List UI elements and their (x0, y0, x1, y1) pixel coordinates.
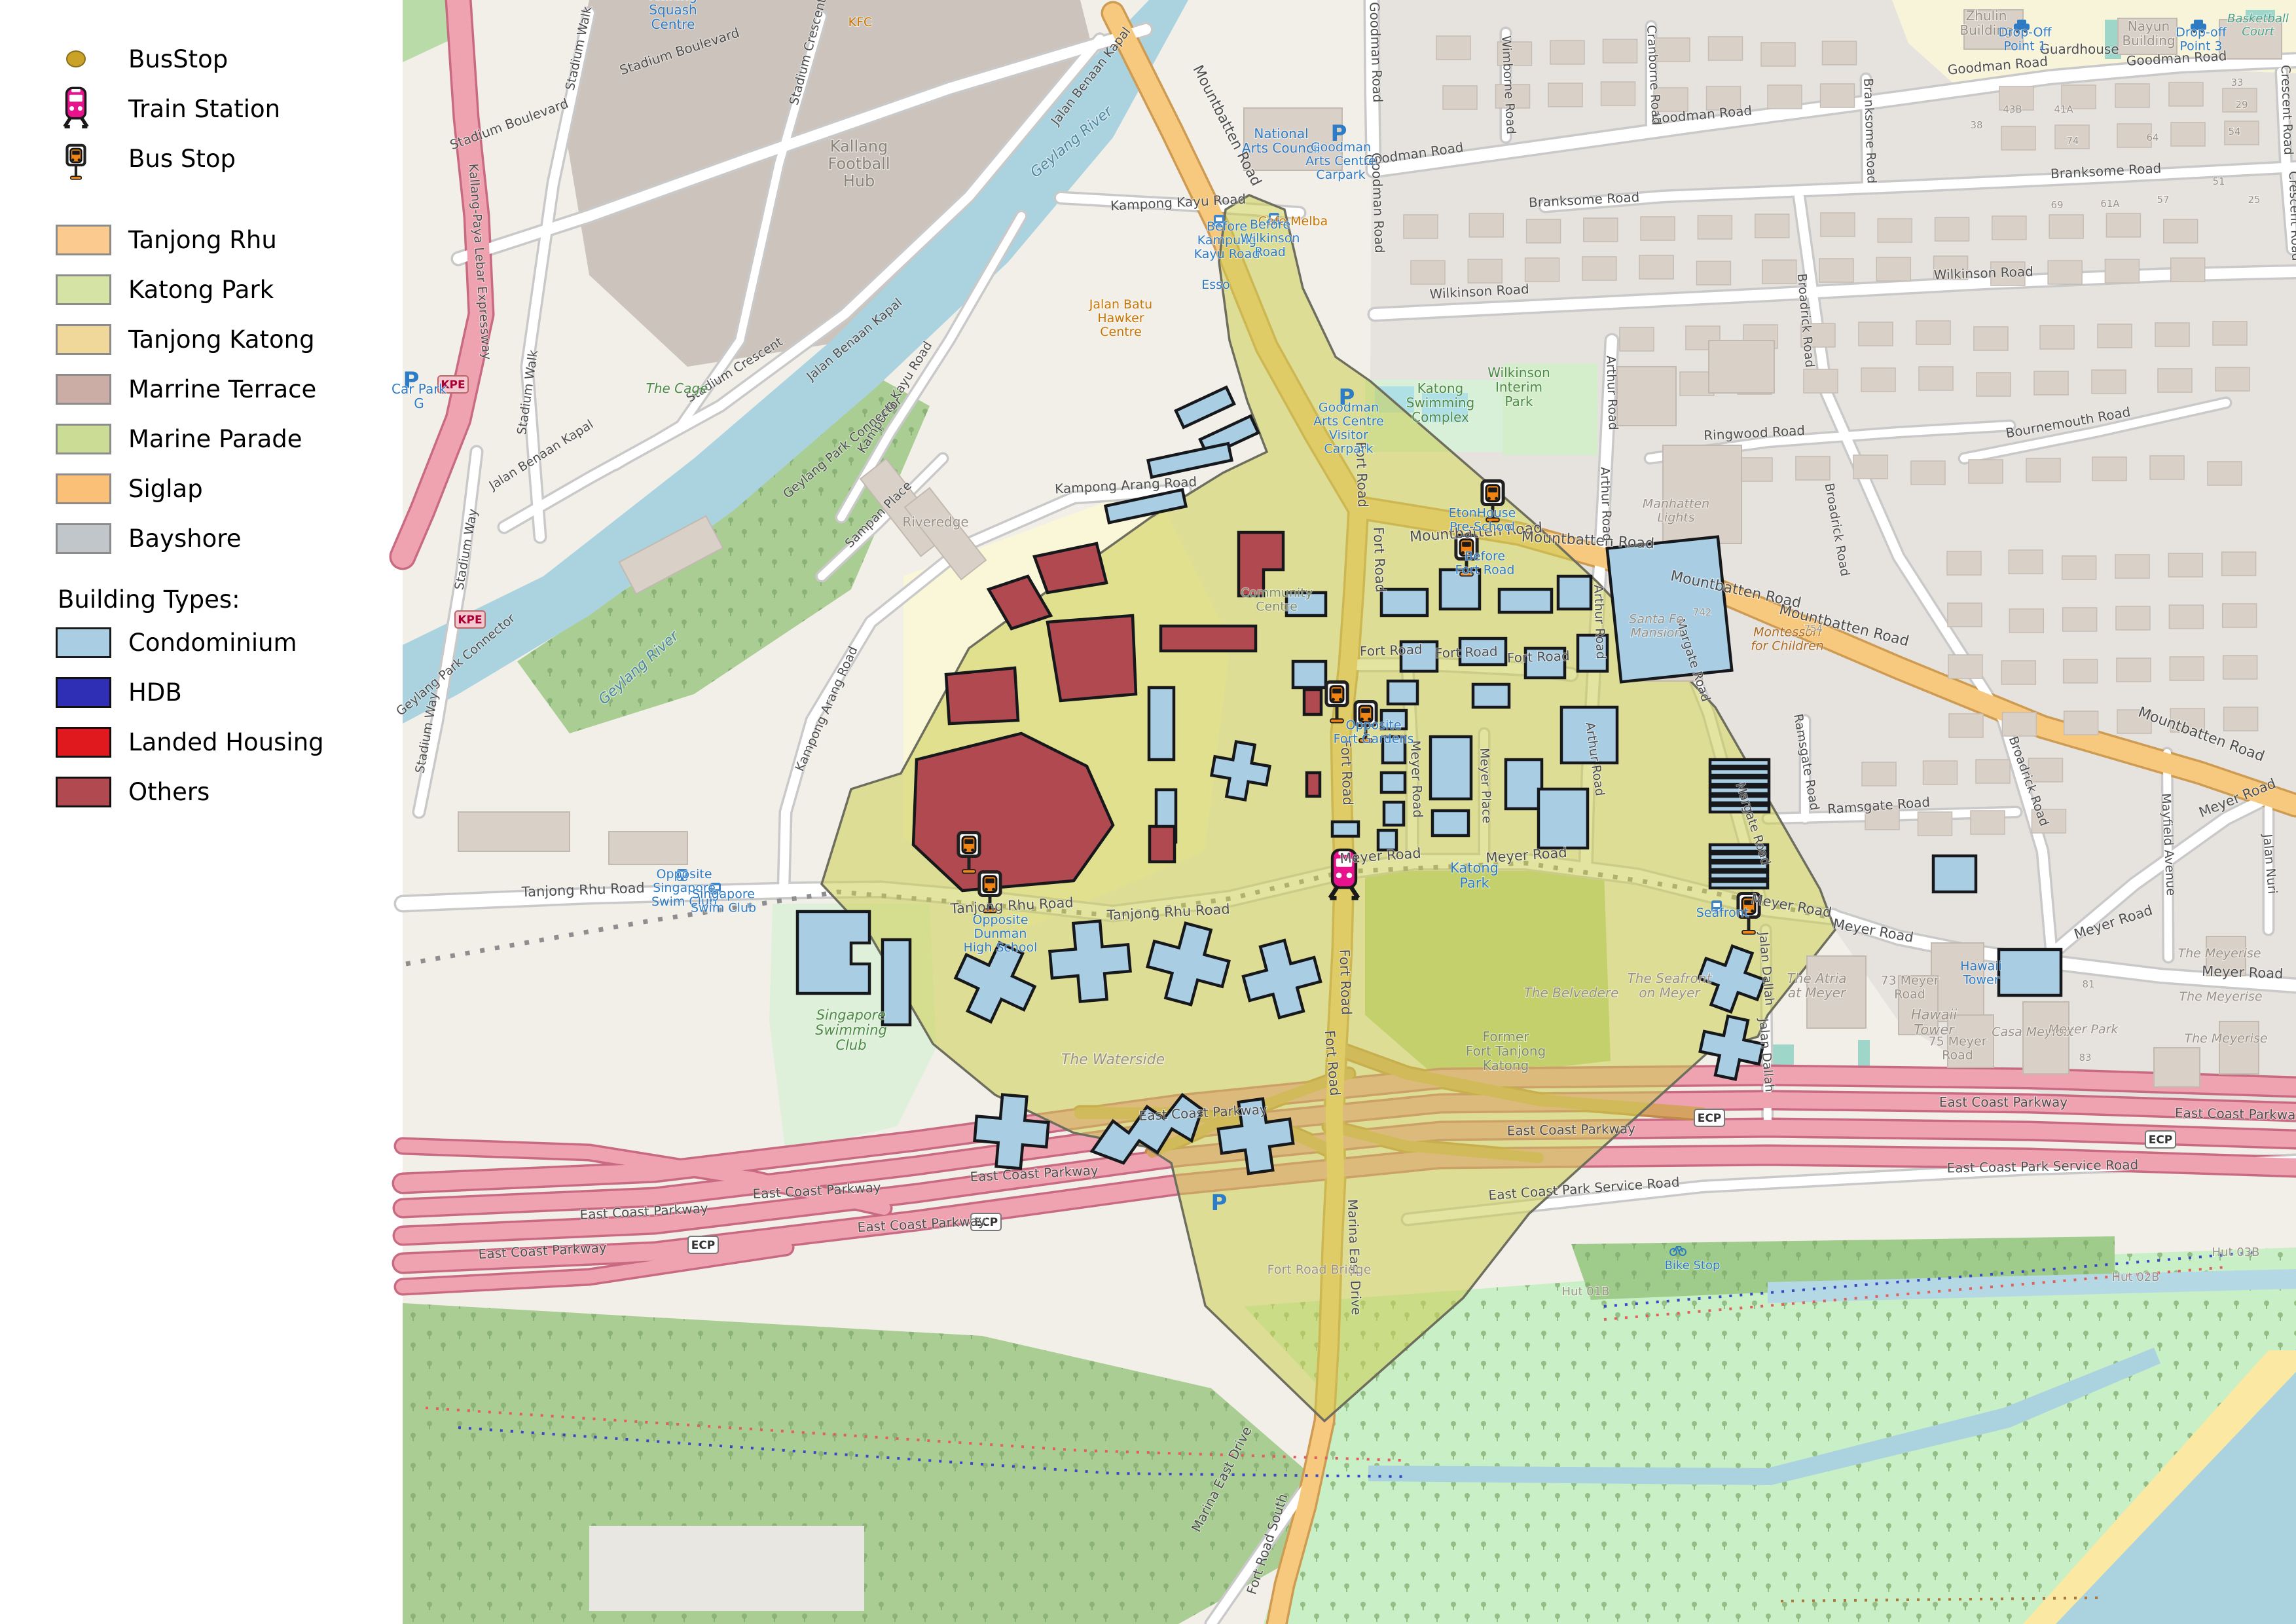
house (2001, 126, 2035, 150)
map-label-line: High School (964, 940, 1038, 955)
condominium-building (1293, 661, 1326, 688)
house (1620, 327, 1654, 351)
map-label-line: Car Park (392, 381, 446, 397)
house (2224, 707, 2258, 731)
map-label-line: Hub (843, 172, 875, 190)
map-label-line: Bike Stop (1665, 1259, 1721, 1272)
shield-text: KPE (458, 614, 482, 627)
map-label: Arthur Road (1603, 356, 1620, 431)
house (2002, 712, 2036, 736)
house (1823, 41, 1857, 65)
house (2164, 219, 2198, 243)
katong-park-swatch (56, 274, 111, 305)
map-label-line: Fort Road (1338, 739, 1355, 805)
map-label-line: Point 3 (2179, 39, 2222, 53)
house (2171, 258, 2205, 282)
map-label-line: Drop-Off (1998, 26, 2052, 40)
condominium-building (1710, 872, 1768, 879)
map-label-line: Mansion (1631, 625, 1683, 640)
base (1330, 719, 1343, 723)
map-label-line: 51 (2212, 175, 2225, 187)
condominium-building (1710, 769, 1769, 775)
siglap-swatch (56, 473, 111, 504)
map-label-line: Opposite (656, 867, 712, 881)
map-label-line: Zhulin (1966, 8, 2007, 24)
map-label-line: Fort Road Bridge (1267, 1263, 1372, 1277)
map-label: Fort Road (1336, 949, 1354, 1015)
map-label-line: Riveredge (902, 514, 968, 530)
house (1768, 85, 1802, 109)
map-label: HawaiiTower (1960, 959, 2002, 987)
train-window (69, 95, 82, 101)
house (2117, 658, 2151, 682)
map-label: 29 (2235, 99, 2248, 111)
map-label-line: Tower (1962, 972, 1999, 987)
house (1584, 218, 1618, 242)
tanjong-rhu-swatch (56, 225, 111, 255)
map-label-line: 25 (2248, 194, 2260, 206)
condominium-building (1473, 684, 1509, 707)
wheel (1495, 497, 1498, 500)
ecp-shield: ECP (688, 1236, 718, 1253)
house (2213, 322, 2247, 345)
condominium-building (1430, 737, 1471, 799)
map-label-line: The Cage (646, 380, 708, 396)
house (2223, 655, 2257, 679)
house (2106, 213, 2140, 237)
map-label-line: Manhatten (1643, 497, 1709, 511)
map-label: The Meyerise (2178, 946, 2261, 961)
map-label-line: Fort Road (1336, 949, 1354, 1015)
car-cab (2194, 20, 2203, 24)
house (1525, 258, 1559, 282)
train-station-icon (65, 88, 88, 126)
map-label-line: Basketball (2227, 12, 2289, 26)
map-label-line: The Meyerise (2178, 946, 2261, 961)
kpe-shield: KPE (455, 611, 485, 628)
others-building (1150, 826, 1175, 862)
map-label-line: Swimming (815, 1022, 887, 1038)
ecp-shield: ECP (2145, 1131, 2176, 1148)
condominium-building (1999, 950, 2061, 995)
house (2215, 367, 2250, 391)
map-label: Esso (1201, 278, 1230, 292)
map-label: The Meyerise (2179, 989, 2262, 1004)
map-label-line: Pre-School (1449, 519, 1515, 534)
wheel (1487, 497, 1491, 500)
house (1738, 458, 1772, 481)
map-label-line: 69 (2050, 199, 2063, 211)
map-label: 64 (2146, 132, 2159, 143)
house (2001, 661, 2035, 684)
map-label-line: Road (1894, 987, 1925, 1001)
legend-label-marrine-terrace: Marrine Terrace (128, 375, 316, 403)
house (1948, 603, 1982, 627)
map-label-line: Squash (649, 2, 697, 18)
condominium-building (1149, 688, 1174, 760)
others-building (1161, 626, 1256, 651)
house (2063, 608, 2097, 631)
map-label: Fort Road (1370, 526, 1388, 593)
map-label-line: Katong (1450, 860, 1499, 876)
house (1796, 456, 1830, 480)
map-label-line: Singapore (692, 887, 755, 902)
map-label-line: 75 Meyer (1928, 1035, 1986, 1049)
map-label-line: Arthur Road (1603, 356, 1620, 431)
train-light (1336, 872, 1342, 878)
house (2098, 324, 2132, 348)
windshield (1361, 708, 1370, 712)
house (2034, 371, 2068, 395)
map-label-line: Meyer Place (1477, 748, 1494, 824)
map-label: NayunBuilding (2122, 18, 2175, 48)
map-label-line: The Meyerise (2184, 1031, 2267, 1046)
house (1641, 217, 1675, 240)
house (1948, 655, 1982, 678)
legend-item-marrine-terrace: Marrine Terrace (39, 364, 393, 414)
map-label: 61A (2100, 198, 2120, 210)
map-label-line: Lights (1657, 510, 1694, 525)
legend-item-others: Others (39, 767, 393, 817)
wheel (971, 849, 974, 852)
map-label: KFC (848, 15, 873, 29)
map-label-line: 64 (2146, 132, 2159, 143)
map-label-line: East Coast Park Service Road (1946, 1156, 2138, 1175)
others-building (1304, 690, 1321, 714)
train-station-icon (48, 84, 104, 134)
map-label: HawaiiTower (1911, 1006, 1958, 1037)
house (1527, 219, 1561, 243)
windshield (1332, 688, 1341, 693)
house (2049, 215, 2083, 238)
map-label-line: Carpark (1316, 168, 1365, 182)
map-label-line: Park (1504, 394, 1533, 409)
legend-item-train-station: Train Station (39, 84, 393, 134)
condominium-building (1710, 760, 1769, 766)
map-label: The Seafronton Meyer (1628, 970, 1713, 1001)
map-label: 81 (2082, 978, 2094, 990)
train-light (69, 106, 74, 111)
legend-item-bus-stop: Bus Stop (39, 134, 393, 183)
windshield (1488, 487, 1497, 492)
map-label-line: Fort Road (1455, 563, 1515, 577)
map-label-line: Fort Road (1507, 648, 1570, 665)
legend-label-condominium: Condominium (128, 629, 297, 657)
house (1469, 213, 1503, 237)
legend-label-bus-stop: Bus Stop (128, 145, 236, 173)
map-label: The Cage (646, 380, 708, 396)
legend-label-landed-housing: Landed Housing (128, 728, 324, 756)
house (1971, 811, 2005, 834)
map-label-line: Fort Road (1435, 643, 1498, 661)
map-label-line: Former (1483, 1029, 1530, 1044)
map-label: 742 (1693, 606, 1712, 618)
map-label: Guardhouse (2039, 41, 2119, 57)
shield-text: ECP (691, 1239, 716, 1252)
house (1443, 86, 1477, 109)
map-label-line: Building (2122, 33, 2175, 48)
windshield (964, 839, 974, 843)
busstop-dot-icon (48, 34, 104, 84)
map-label-line: Nayun (2128, 18, 2170, 34)
map-label-line: Centre (1100, 325, 1142, 339)
map-label: 33 (2231, 77, 2243, 88)
map-label-line: Opposite (972, 913, 1028, 927)
gray-building (458, 812, 570, 851)
house (1976, 760, 2010, 783)
house (1819, 259, 1853, 282)
map-label-line: Kayu Road (1194, 247, 1260, 261)
map-label-line: Hut 02B (2112, 1270, 2160, 1284)
map-label: Fort Road (1360, 641, 1423, 659)
bus-stop-icon (48, 134, 104, 183)
house (2009, 550, 2043, 574)
house (1859, 322, 1893, 346)
map-label: East Coast Parkway (1507, 1120, 1636, 1138)
map-label: Arthur Road (1591, 585, 1608, 660)
house (1862, 762, 1896, 786)
map-label-line: Arts Centre (1313, 415, 1384, 429)
map-label-line: 754 (1804, 623, 1823, 635)
condominium-building (1499, 589, 1552, 612)
map-label: Fort Road (1338, 739, 1355, 805)
condominium-building (1710, 805, 1769, 812)
map-label-line: Fort Tanjong (1466, 1043, 1546, 1059)
map-label-line: Dunman (974, 927, 1027, 941)
map-label-line: Hawaii (1911, 1006, 1958, 1022)
map-label-line: Hawaii (1960, 959, 2002, 974)
map-label: East Coast Park Service Road (1946, 1156, 2138, 1175)
map-label-line: 61A (2100, 198, 2120, 210)
house (1878, 219, 1912, 242)
wheel (1339, 698, 1342, 701)
house (2064, 711, 2098, 735)
map-label: 74 (2066, 135, 2079, 147)
house (1698, 215, 1732, 239)
map-label-line: Club (835, 1037, 866, 1053)
house (1656, 38, 1690, 62)
windshield (985, 878, 994, 883)
bus-stop-icon (67, 145, 84, 179)
bus-stop-icon-cell (39, 134, 113, 183)
map-label-line: Esso (1201, 278, 1230, 292)
map-label: Seafront (1696, 906, 1749, 920)
house (2116, 606, 2150, 630)
wheel (1751, 910, 1754, 913)
house (2168, 553, 2202, 577)
marine-parade-swatch (56, 424, 111, 454)
legend-label-hdb: HDB (128, 678, 182, 707)
shield-text: ECP (1698, 1112, 1722, 1125)
map-label-line: Road (1254, 245, 1286, 259)
map-label: Hut 02B (2112, 1270, 2160, 1284)
map-label: The Belvedere (1524, 985, 1619, 1001)
map-label-line: Arthur Road (1597, 467, 1614, 542)
house (1911, 461, 1945, 485)
map-label-line: 74 (2066, 135, 2079, 147)
map-label: Arthur Road (1597, 467, 1614, 542)
gray-building (1617, 367, 1676, 426)
house (1919, 367, 1953, 390)
house (1935, 217, 1969, 241)
house (2170, 657, 2204, 680)
map-label-line: 81 (2082, 978, 2094, 990)
map-label-line: Hawker (1097, 311, 1144, 325)
condominium-building (1506, 760, 1542, 809)
map-label: 51 (2212, 175, 2225, 187)
base (1742, 931, 1755, 934)
legend-item-hdb: HDB (39, 667, 393, 717)
house (1755, 214, 1789, 238)
legend-item-busstop-point: BusStop (39, 34, 393, 84)
condominium-building (1381, 589, 1427, 616)
legend-label-train-station: Train Station (128, 95, 280, 123)
map-label: OppositeDunmanHigh School (964, 913, 1038, 955)
map-label-line: Santa Fe (1629, 612, 1684, 627)
house (1853, 455, 1887, 479)
map-label: Meyer Place (1477, 748, 1494, 824)
legend-item-bayshore: Bayshore (39, 513, 393, 563)
wheel (992, 888, 995, 891)
legend-item-katong-park: Katong Park (39, 265, 393, 314)
house (2169, 83, 2203, 106)
map-label-line: Meyer Road (1408, 740, 1426, 818)
house (1947, 551, 1981, 575)
house (2222, 552, 2256, 576)
map-label-line: Katong (1417, 380, 1463, 396)
shield-text: ECP (2149, 1134, 2173, 1147)
house (2208, 462, 2242, 485)
map-label-line: Fort Road (1370, 526, 1388, 593)
condominium-building (1388, 681, 1417, 704)
gray-building (1663, 445, 1741, 544)
map-label: The Atriaat Meyer (1787, 970, 1847, 1001)
map-label-line: Goodman (1319, 401, 1379, 415)
condominium-building (1432, 811, 1468, 836)
legend-item-landed-housing: Landed Housing (39, 717, 393, 767)
map-label-line: 54 (2228, 126, 2240, 138)
wheel (964, 849, 967, 852)
map-label-line: Visitor (1329, 428, 1368, 442)
map-label: KallangSquashCentre (649, 0, 697, 32)
house (1821, 213, 1855, 236)
map-label: 83 (2079, 1052, 2091, 1063)
map-label-line: National (1254, 126, 1308, 141)
map-label-line: Community (1241, 586, 1313, 600)
map-label: Meyer Road (1408, 740, 1426, 818)
train-body (67, 88, 86, 118)
house (2062, 556, 2096, 580)
map-label-line: Kallang (830, 138, 888, 156)
map-label: EtonHousePre-School (1449, 506, 1516, 534)
legend-label-marine-parade: Marine Parade (128, 425, 302, 453)
house (1876, 257, 1910, 281)
map-label: Meyer Park (2049, 1022, 2119, 1037)
condominium-building (1558, 576, 1591, 609)
legend-item-siglap: Siglap (39, 464, 393, 513)
marrine-terrace-swatch (56, 374, 111, 405)
others-swatch (56, 777, 111, 807)
map-label-line: Complex (1412, 409, 1469, 425)
map-label-line: Singapore (816, 1007, 886, 1023)
others-building (1048, 616, 1136, 701)
house (1804, 369, 1838, 393)
train-light (1347, 872, 1353, 878)
map-label-line: Arthur Road (1591, 585, 1608, 660)
parking-lot (589, 1526, 864, 1611)
others-building (1307, 773, 1320, 796)
house (2171, 122, 2205, 146)
house (1861, 368, 1895, 392)
house (2158, 369, 2192, 392)
house (1923, 761, 1958, 784)
map-label-line: 38 (1970, 119, 1982, 131)
train-roof-window (71, 89, 81, 92)
condominium-building (1384, 802, 1404, 825)
gray-building (1709, 341, 1774, 393)
house (1762, 260, 1796, 284)
map-label: 38 (1970, 119, 1982, 131)
map-label-line: Park (1459, 876, 1489, 891)
wheel (78, 158, 81, 161)
map-label: Santa FeMansion (1629, 612, 1684, 640)
house (2150, 456, 2184, 479)
house (1601, 82, 1635, 105)
map-label: Hut 03B (2212, 1246, 2260, 1259)
busstop-point-icon-cell (39, 34, 113, 84)
map-label-line: 73 Meyer (1880, 974, 1939, 988)
map-label-line: Meyer Park (2049, 1022, 2119, 1037)
house (1468, 259, 1502, 283)
house (2092, 370, 2126, 394)
map-screenshot: PPPPECPECPECPECPKPEKPEMountbatten RoadMo… (0, 0, 2296, 1624)
windshield (72, 151, 79, 155)
house (1404, 215, 1438, 238)
wheel (1332, 698, 1335, 701)
house (1974, 327, 2008, 350)
map-label-line: 83 (2079, 1052, 2091, 1063)
map-label-line: Hut 01B (1562, 1285, 1610, 1299)
map-label-line: Drop-off (2176, 26, 2227, 40)
house (1761, 43, 1795, 66)
map-label-line: Road (1942, 1048, 1973, 1062)
condominium-building (883, 940, 910, 1025)
map-label: 41A (2054, 103, 2073, 115)
house (1709, 37, 1743, 60)
map-label-line: Before (1465, 549, 1505, 564)
map-label-line: East Coast Parkway (2175, 1105, 2296, 1122)
map-label-line: The Seafront (1628, 970, 1713, 986)
map-label-line: Centre (651, 16, 695, 32)
map-label-line: Seafront (1696, 906, 1749, 920)
map-label: Bike Stop (1665, 1259, 1721, 1272)
condominium-swatch (56, 627, 111, 658)
map-label: 43B (2003, 103, 2022, 115)
house (1918, 812, 1952, 836)
bayshore-swatch (56, 523, 111, 554)
map-label-line: The Belvedere (1524, 985, 1619, 1001)
house (1821, 84, 1855, 107)
map-label-line: 29 (2235, 99, 2248, 111)
house (1916, 321, 1950, 344)
map-label: Drop-OffPoint 1 (1998, 26, 2052, 54)
map-label-line: EtonHouse (1449, 506, 1516, 521)
legend-label-katong-park: Katong Park (128, 276, 274, 304)
map-label-line: on Meyer (1639, 985, 1701, 1001)
map-label-line: Carpark (1324, 441, 1373, 456)
map-label-line: Interim (1495, 379, 1542, 395)
others-building (946, 668, 1018, 724)
